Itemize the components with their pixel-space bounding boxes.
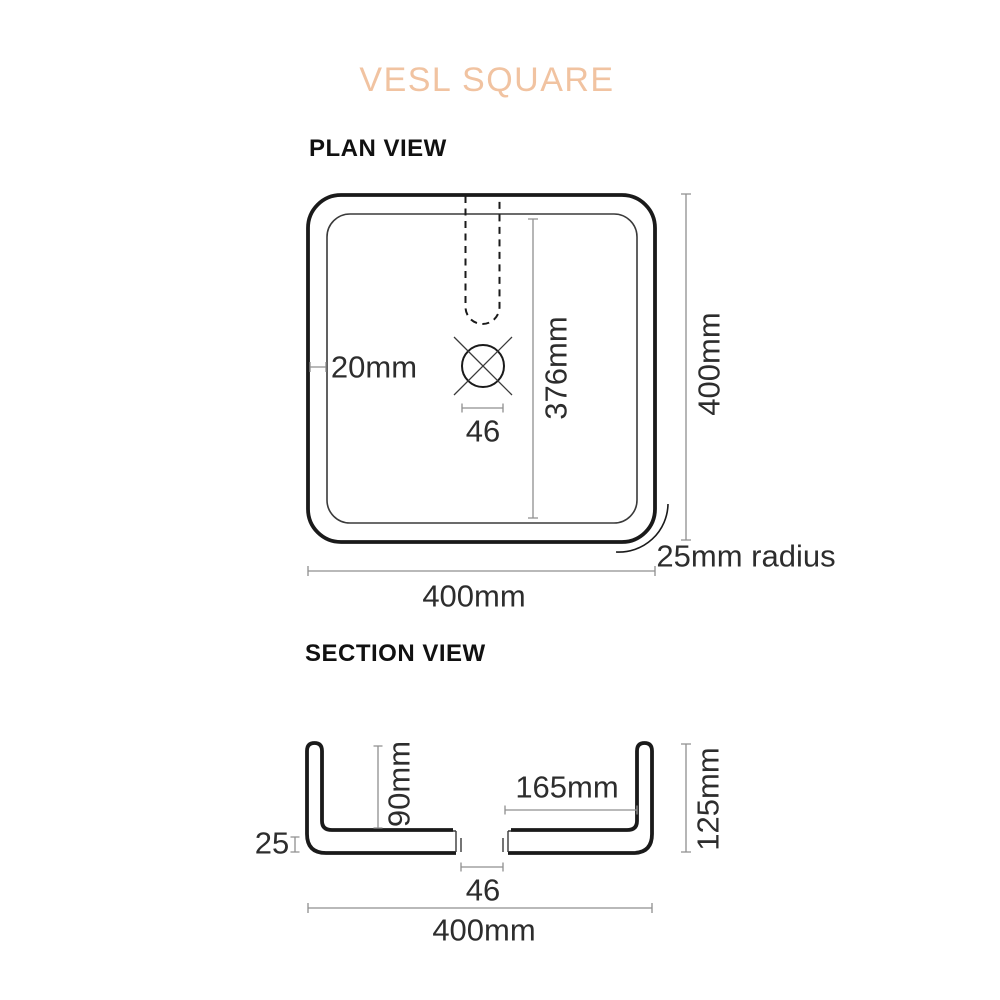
plan-inner-length-label: 376mm	[541, 316, 572, 419]
drawing-canvas	[0, 0, 1000, 1000]
plan-rim-width-dim-line	[310, 362, 326, 372]
tap-cutout-dashed-outline	[466, 196, 500, 324]
section-view-heading: SECTION VIEW	[305, 640, 486, 668]
technical-drawing-page: VESL SQUARE PLAN VIEW 20mm 46 376mm 400m…	[0, 0, 1000, 1000]
plan-view-drawing	[308, 194, 691, 576]
plan-inner-length-dim-line	[528, 219, 538, 518]
section-base-thickness-label: 25	[255, 828, 289, 859]
plan-height-dim-line	[681, 194, 691, 540]
plan-drain-width-dim-line	[462, 404, 503, 413]
drain-symbol	[454, 337, 512, 395]
plan-width-dim-line	[308, 566, 655, 576]
plan-rim-width-label: 20mm	[331, 352, 417, 383]
plan-drain-width-label: 46	[466, 416, 500, 447]
section-drain-to-wall-label: 165mm	[515, 772, 618, 803]
section-drain-width-dim-line	[461, 863, 503, 872]
section-height-dim-line	[681, 744, 691, 852]
plan-height-label: 400mm	[694, 312, 725, 415]
plan-dimension-lines	[308, 194, 691, 576]
section-width-label: 400mm	[432, 915, 535, 946]
section-drain-to-wall-dim-line	[505, 806, 637, 815]
plan-width-label: 400mm	[422, 581, 525, 612]
section-base-thickness-dim-line	[291, 837, 300, 852]
section-depth-label: 90mm	[384, 741, 415, 827]
product-title: VESL SQUARE	[359, 61, 614, 100]
drain-recess-step-lines	[453, 831, 511, 852]
plan-view-heading: PLAN VIEW	[309, 135, 447, 163]
section-drain-width-label: 46	[466, 875, 500, 906]
plan-corner-radius-label: 25mm radius	[656, 541, 835, 572]
section-height-label: 125mm	[693, 747, 724, 850]
